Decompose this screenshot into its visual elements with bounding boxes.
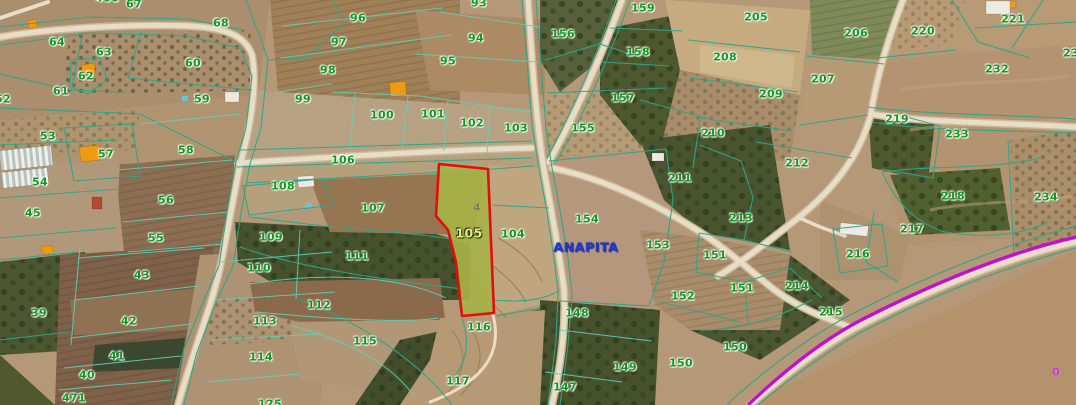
- parcel-boundary-lines-light: [58, 8, 652, 396]
- highlighted-parcel-105[interactable]: [436, 164, 494, 316]
- parcel-boundary-lines: [0, 0, 1076, 405]
- cadastral-map-viewport[interactable]: 4666796931592052212206864979415620663951…: [0, 0, 1076, 405]
- cadastral-overlay: [0, 0, 1076, 405]
